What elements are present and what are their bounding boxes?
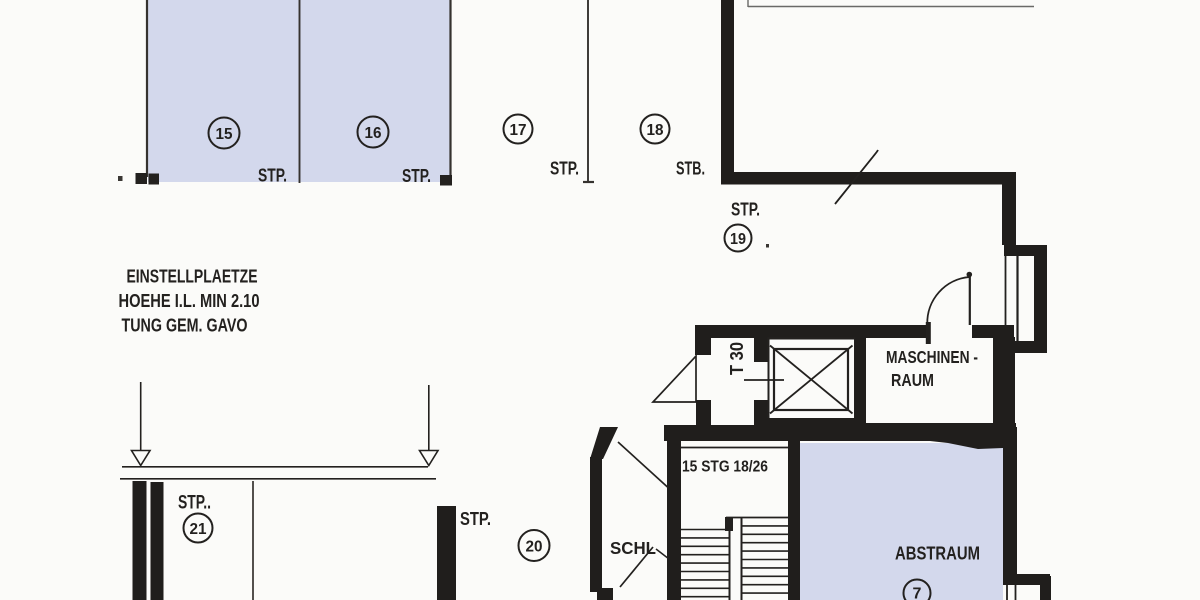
- svg-text:STP.: STP.: [550, 159, 579, 179]
- svg-text:HOEHE I.L. MIN 2.10: HOEHE I.L. MIN 2.10: [119, 290, 260, 311]
- svg-text:STP..: STP..: [178, 493, 211, 514]
- svg-text:EINSTELLPLAETZE: EINSTELLPLAETZE: [127, 266, 258, 287]
- svg-text:21: 21: [190, 521, 207, 538]
- svg-text:STB.: STB.: [676, 159, 705, 179]
- svg-text:16: 16: [365, 125, 382, 142]
- svg-text:17: 17: [510, 122, 527, 139]
- svg-text:15: 15: [216, 126, 233, 143]
- svg-text:7: 7: [913, 586, 922, 600]
- svg-text:T 30: T 30: [727, 342, 747, 375]
- svg-text:15 STG 18/26: 15 STG 18/26: [682, 459, 768, 476]
- svg-text:SCHL: SCHL: [610, 538, 656, 558]
- svg-text:18: 18: [647, 122, 664, 139]
- svg-text:MASCHINEN -: MASCHINEN -: [886, 347, 978, 367]
- svg-text:STP.: STP.: [731, 200, 760, 220]
- svg-text:RAUM: RAUM: [891, 370, 934, 390]
- svg-text:STP.: STP.: [258, 166, 287, 186]
- svg-text:19: 19: [730, 231, 746, 248]
- svg-text:STP.: STP.: [402, 166, 431, 186]
- svg-text:ABSTRAUM: ABSTRAUM: [895, 543, 980, 564]
- svg-text:STP.: STP.: [460, 509, 491, 529]
- svg-text:TUNG GEM. GAVO: TUNG GEM. GAVO: [122, 315, 248, 336]
- svg-text:20: 20: [526, 539, 543, 556]
